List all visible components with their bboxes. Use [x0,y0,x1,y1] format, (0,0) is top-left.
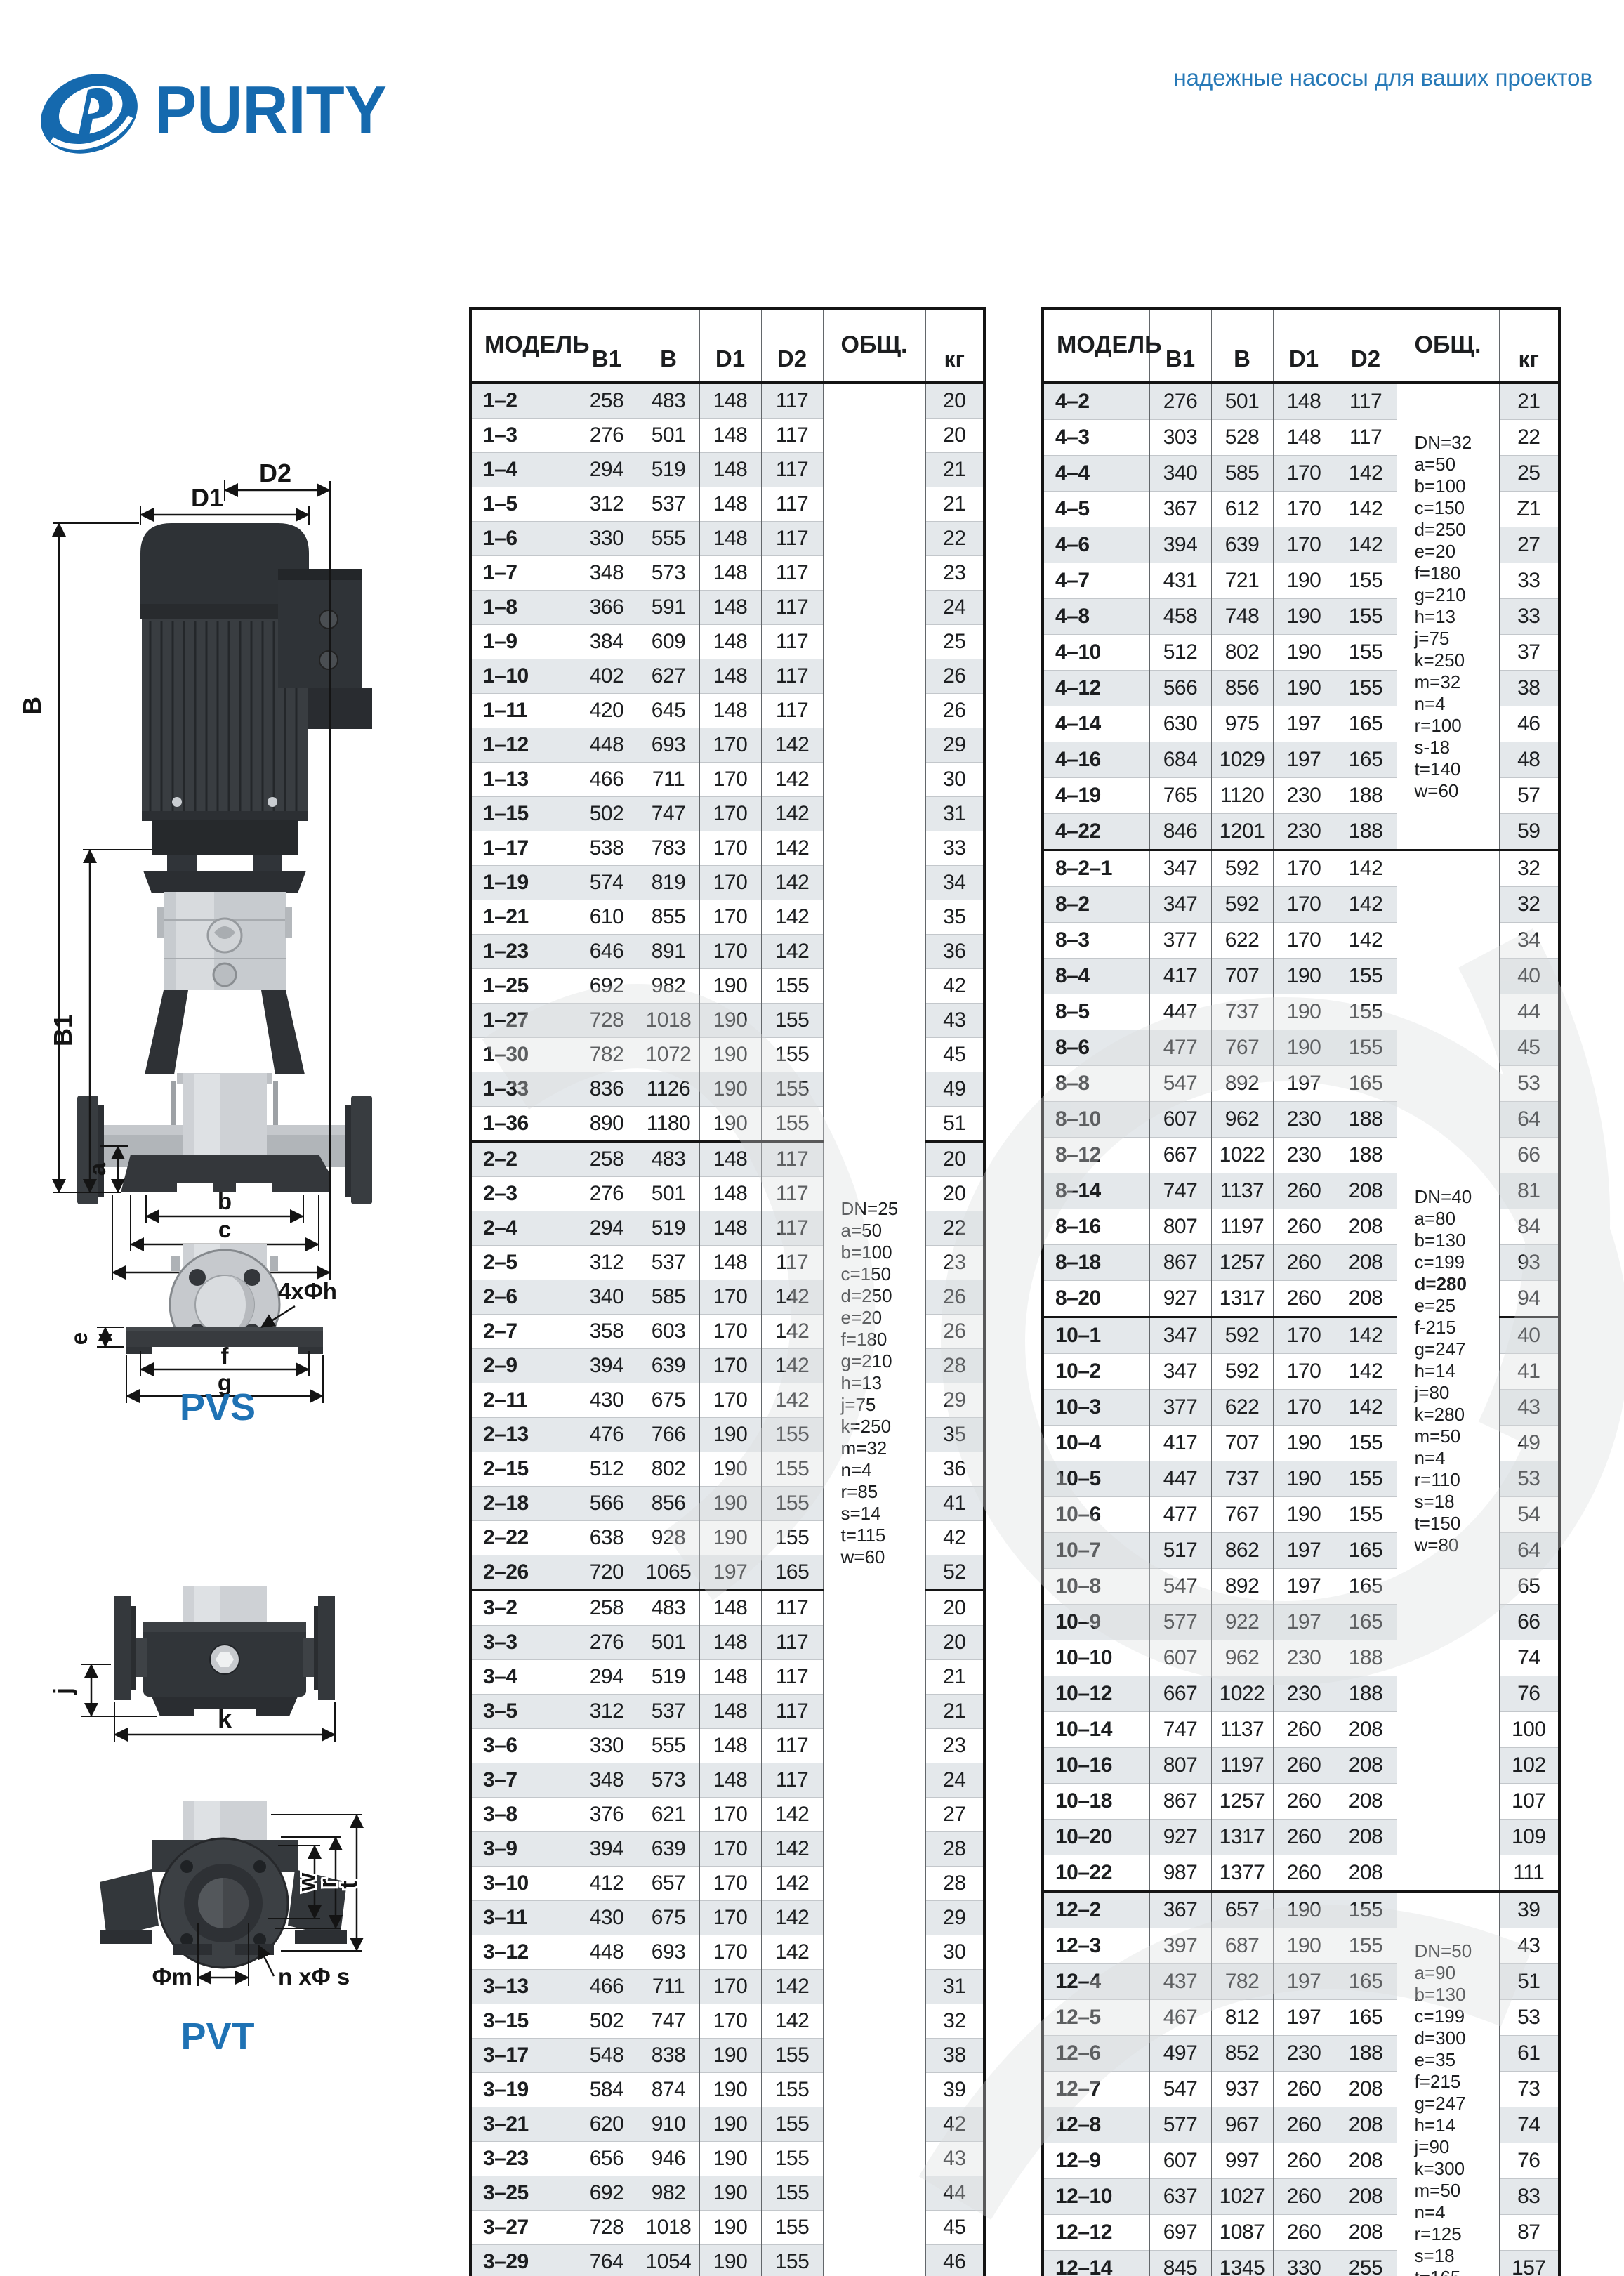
value-cell: 347 [1149,887,1211,923]
value-cell: 431 [1149,563,1211,599]
value-cell: 630 [1149,706,1211,742]
common-dimension-line: h=14 [1415,2114,1498,2136]
pvs-front-view: D2 D1 B B1 a b c [18,459,372,1280]
common-dimension-line: h=13 [841,1372,925,1394]
value-cell: 170 [699,1832,761,1867]
weight-cell: 21 [925,1660,984,1695]
model-cell: 1–30 [470,1038,576,1072]
value-cell: 142 [761,1383,823,1418]
value-cell: 982 [638,969,699,1004]
common-dimension-line: a=80 [1415,1208,1498,1230]
value-cell: 190 [699,1107,761,1142]
value-cell: 767 [1211,1497,1273,1533]
value-cell: 765 [1149,778,1211,814]
model-cell: 1–2 [470,383,576,419]
common-dimension-line: DN=25 [841,1198,925,1220]
value-cell: 170 [1273,527,1335,563]
model-cell: 8–4 [1043,959,1149,994]
value-cell: 148 [1273,383,1335,420]
value-cell: 155 [761,1038,823,1072]
value-cell: 592 [1211,850,1273,887]
value-cell: 501 [638,1626,699,1660]
value-cell: 867 [1149,1784,1211,1820]
model-cell: 10–2 [1043,1354,1149,1390]
model-cell: 1–17 [470,831,576,866]
model-cell: 10–6 [1043,1497,1149,1533]
value-cell: 142 [1335,1390,1397,1426]
value-cell: 1120 [1211,778,1273,814]
value-cell: 208 [1335,2179,1397,2215]
weight-cell: 53 [1499,1461,1559,1497]
model-cell: 8–3 [1043,923,1149,959]
value-cell: 190 [699,2073,761,2107]
value-cell: 377 [1149,923,1211,959]
value-cell: 1018 [638,1004,699,1038]
model-cell: 8–14 [1043,1173,1149,1209]
common-dimension-line: f=180 [1415,563,1498,584]
model-cell: 3–6 [470,1729,576,1763]
weight-cell: 84 [1499,1209,1559,1245]
value-cell: 528 [1211,420,1273,456]
model-cell: 10–16 [1043,1748,1149,1784]
model-cell: 4–5 [1043,492,1149,527]
value-cell: 197 [1273,742,1335,778]
value-cell: 693 [638,728,699,763]
value-cell: 260 [1273,2143,1335,2179]
value-cell: 117 [761,625,823,659]
value-cell: 519 [638,1660,699,1695]
weight-cell: 32 [1499,850,1559,887]
value-cell: 874 [638,2073,699,2107]
model-cell: 4–10 [1043,635,1149,671]
model-cell: 10–5 [1043,1461,1149,1497]
common-dimension-line: g=247 [1415,1338,1498,1360]
weight-cell: 33 [1499,563,1559,599]
model-cell: 3–9 [470,1832,576,1867]
value-cell: 142 [761,1867,823,1901]
value-cell: 483 [638,1591,699,1626]
value-cell: 142 [1335,887,1397,923]
common-dimension-line: r=110 [1415,1469,1498,1491]
weight-cell: 29 [925,728,984,763]
value-cell: 928 [638,1521,699,1555]
value-cell: 117 [761,556,823,591]
weight-cell: 26 [925,659,984,694]
value-cell: 276 [1149,383,1211,420]
value-cell: 1201 [1211,814,1273,850]
value-cell: 155 [1335,635,1397,671]
value-cell: 260 [1273,1855,1335,1892]
value-cell: 170 [1273,850,1335,887]
common-dimension-line: f-215 [1415,1317,1498,1338]
common-dimension-line: e=25 [1415,1295,1498,1317]
value-cell: 747 [638,2004,699,2039]
value-cell: 155 [1335,671,1397,706]
weight-cell: 74 [1499,1640,1559,1676]
model-cell: 3–15 [470,2004,576,2039]
bolt-count-callout: n xΦ s [278,1963,350,1989]
common-dimension-line: c=150 [841,1263,925,1285]
weight-cell: 32 [925,2004,984,2039]
value-cell: 537 [638,487,699,522]
value-cell: 607 [1149,1640,1211,1676]
value-cell: 574 [576,866,638,900]
model-cell: 2–15 [470,1452,576,1487]
common-dimension-line: s=18 [1415,2245,1498,2267]
model-cell: 2–4 [470,1211,576,1246]
value-cell: 862 [1211,1533,1273,1569]
value-cell: 547 [1149,1066,1211,1102]
weight-cell: 157 [1499,2251,1559,2276]
value-cell: 609 [638,625,699,659]
model-cell: 12–9 [1043,2143,1149,2179]
dim-label-e: e [66,1332,92,1345]
model-cell: 2–5 [470,1246,576,1280]
value-cell: 148 [699,1660,761,1695]
value-cell: 783 [638,831,699,866]
model-cell: 8–5 [1043,994,1149,1030]
value-cell: 208 [1335,2215,1397,2251]
value-cell: 675 [638,1901,699,1935]
value-cell: 170 [699,1349,761,1383]
value-cell: 190 [699,2039,761,2073]
value-cell: 188 [1335,1640,1397,1676]
value-cell: 867 [1149,1245,1211,1281]
value-cell: 782 [1211,1964,1273,2000]
value-cell: 260 [1273,1209,1335,1245]
value-cell: 190 [699,1418,761,1452]
value-cell: 170 [1273,1317,1335,1354]
model-cell: 8–6 [1043,1030,1149,1066]
weight-cell: 73 [1499,2072,1559,2107]
value-cell: 1126 [638,1072,699,1107]
value-cell: 537 [638,1246,699,1280]
weight-cell: 64 [1499,1102,1559,1138]
value-cell: 255 [1335,2251,1397,2276]
weight-cell: 35 [925,1418,984,1452]
value-cell: 117 [761,1211,823,1246]
value-cell: 417 [1149,1426,1211,1461]
value-cell: 148 [699,659,761,694]
weight-cell: 21 [1499,383,1559,420]
value-cell: 170 [699,1970,761,2004]
value-cell: 142 [761,831,823,866]
value-cell: 1317 [1211,1281,1273,1317]
weight-cell: 45 [925,2211,984,2245]
value-cell: 767 [1211,1030,1273,1066]
value-cell: 190 [699,2211,761,2245]
value-cell: 747 [1149,1173,1211,1209]
value-cell: 397 [1149,1928,1211,1964]
common-dimension-line: e=35 [1415,2049,1498,2071]
value-cell: 656 [576,2142,638,2176]
value-cell: 260 [1273,2072,1335,2107]
common-dimension-line: m=32 [841,1438,925,1459]
model-cell: 8–20 [1043,1281,1149,1317]
model-cell: 2–13 [470,1418,576,1452]
model-cell: 12–5 [1043,2000,1149,2036]
common-dimension-line: c=199 [1415,1251,1498,1273]
common-dimension-line: j=90 [1415,2136,1498,2158]
model-cell: 4–6 [1043,527,1149,563]
value-cell: 483 [638,1142,699,1177]
value-cell: 707 [1211,959,1273,994]
weight-cell: 33 [925,831,984,866]
value-cell: 657 [1211,1892,1273,1928]
weight-cell: 29 [925,1901,984,1935]
value-cell: 638 [576,1521,638,1555]
value-cell: 190 [699,1521,761,1555]
value-cell: 208 [1335,1173,1397,1209]
dim-label-b1: B1 [48,1014,77,1046]
value-cell: 1377 [1211,1855,1273,1892]
weight-cell: 31 [925,797,984,831]
table-row: 12–2367657190155DN=50a=90b=130c=199d=300… [1043,1892,1559,1928]
value-cell: 910 [638,2107,699,2142]
value-cell: 748 [1211,599,1273,635]
value-cell: 612 [1211,492,1273,527]
value-cell: 497 [1149,2036,1211,2072]
common-dimension-line: w=80 [1415,1534,1498,1556]
value-cell: 1317 [1211,1820,1273,1855]
value-cell: 170 [699,1383,761,1418]
dim-label-k: k [218,1704,232,1733]
value-cell: 547 [1149,1569,1211,1605]
model-cell: 10–3 [1043,1390,1149,1426]
col-header-obsh: ОБЩ. [823,308,925,383]
value-cell: 142 [761,728,823,763]
model-cell: 10–10 [1043,1640,1149,1676]
model-cell: 1–4 [470,453,576,487]
col-header-kg: кг [925,308,984,383]
value-cell: 802 [638,1452,699,1487]
value-cell: 155 [761,1004,823,1038]
model-cell: 3–2 [470,1591,576,1626]
value-cell: 502 [576,2004,638,2039]
common-dimension-line: m=50 [1415,1426,1498,1447]
weight-cell: 52 [925,1555,984,1591]
value-cell: 855 [638,900,699,935]
value-cell: 155 [1335,1928,1397,1964]
value-cell: 621 [638,1798,699,1832]
dim-label-b-height: B [18,697,46,715]
value-cell: 384 [576,625,638,659]
value-cell: 892 [1211,1066,1273,1102]
model-cell: 12–6 [1043,2036,1149,2072]
value-cell: 155 [1335,599,1397,635]
value-cell: 566 [576,1487,638,1521]
value-cell: 312 [576,487,638,522]
weight-cell: 87 [1499,2215,1559,2251]
model-cell: 1–12 [470,728,576,763]
value-cell: 394 [576,1349,638,1383]
value-cell: 303 [1149,420,1211,456]
value-cell: 165 [1335,1605,1397,1640]
value-cell: 155 [761,2245,823,2276]
weight-cell: 44 [925,2176,984,2211]
model-cell: 8–12 [1043,1138,1149,1173]
col-header-model: МОДЕЛЬ [1043,308,1149,383]
model-cell: 4–16 [1043,742,1149,778]
value-cell: 802 [1211,635,1273,671]
common-dimension-line: n=4 [1415,1447,1498,1469]
value-cell: 117 [761,1695,823,1729]
value-cell: 190 [1273,1497,1335,1533]
value-cell: 190 [1273,1030,1335,1066]
value-cell: 766 [638,1418,699,1452]
value-cell: 584 [576,2073,638,2107]
col-header-model: МОДЕЛЬ [470,308,576,383]
value-cell: 1345 [1211,2251,1273,2276]
common-dimension-line: w=60 [841,1546,925,1568]
value-cell: 208 [1335,2072,1397,2107]
dim-label-fm2: Фm [152,1963,192,1989]
value-cell: 592 [1211,887,1273,923]
model-cell: 1–23 [470,935,576,969]
value-cell: 188 [1335,1138,1397,1173]
value-cell: 148 [699,1695,761,1729]
model-cell: 4–2 [1043,383,1149,420]
model-cell: 3–29 [470,2245,576,2276]
value-cell: 230 [1273,1102,1335,1138]
value-cell: 170 [699,1280,761,1315]
value-cell: 117 [761,1660,823,1695]
value-cell: 170 [699,935,761,969]
value-cell: 148 [699,522,761,556]
value-cell: 117 [761,1246,823,1280]
model-cell: 4–4 [1043,456,1149,492]
weight-cell: 43 [925,1004,984,1038]
value-cell: 190 [1273,1928,1335,1964]
model-cell: 10–20 [1043,1820,1149,1855]
value-cell: 577 [1149,2107,1211,2143]
value-cell: 258 [576,1142,638,1177]
value-cell: 155 [761,1521,823,1555]
value-cell: 208 [1335,1245,1397,1281]
weight-cell: 53 [1499,2000,1559,2036]
value-cell: 155 [761,2107,823,2142]
value-cell: 142 [761,1901,823,1935]
value-cell: 684 [1149,742,1211,778]
common-dimension-line: DN=40 [1415,1186,1498,1208]
value-cell: 591 [638,591,699,625]
value-cell: 208 [1335,1712,1397,1748]
value-cell: 639 [638,1349,699,1383]
value-cell: 165 [1335,1964,1397,2000]
common-dimension-line: t=150 [1415,1513,1498,1534]
value-cell: 402 [576,659,638,694]
model-cell: 12–4 [1043,1964,1149,2000]
value-cell: 197 [1273,1964,1335,2000]
junction-box [278,569,362,688]
value-cell: 555 [638,1729,699,1763]
value-cell: 165 [1335,1066,1397,1102]
value-cell: 117 [761,453,823,487]
value-cell: 142 [761,1315,823,1349]
table-row: 1–2258483148117DN=25a=50b=100c=150d=250e… [470,383,984,419]
value-cell: 190 [1273,1892,1335,1928]
common-dimension-line: k=250 [841,1416,925,1438]
value-cell: 260 [1273,1281,1335,1317]
value-cell: 603 [638,1315,699,1349]
value-cell: 347 [1149,850,1211,887]
weight-cell: 39 [1499,1892,1559,1928]
value-cell: 412 [576,1867,638,1901]
common-dimension-line: c=150 [1415,497,1498,519]
model-cell: 1–21 [470,900,576,935]
common-dimension-line: g=210 [841,1350,925,1372]
value-cell: 142 [761,935,823,969]
common-dimension-line: m=32 [1415,671,1498,693]
dim-label-b-width: b [218,1188,232,1214]
model-cell: 3–5 [470,1695,576,1729]
value-cell: 142 [1335,456,1397,492]
value-cell: 1137 [1211,1173,1273,1209]
col-header-b: B [1211,308,1273,383]
pvt-bottom-view: w r t Фm n xΦ s PVT [100,1801,362,2058]
value-cell: 622 [1211,923,1273,959]
value-cell: 170 [699,1867,761,1901]
value-cell: 728 [576,2211,638,2245]
model-cell: 12–10 [1043,2179,1149,2215]
weight-cell: 30 [925,1935,984,1970]
weight-cell: 46 [925,2245,984,2276]
value-cell: 937 [1211,2072,1273,2107]
value-cell: 1257 [1211,1245,1273,1281]
model-cell: 2–7 [470,1315,576,1349]
value-cell: 645 [638,694,699,728]
value-cell: 230 [1273,778,1335,814]
value-cell: 148 [1273,420,1335,456]
value-cell: 430 [576,1383,638,1418]
value-cell: 501 [638,419,699,453]
value-cell: 610 [576,900,638,935]
value-cell: 155 [1335,1426,1397,1461]
value-cell: 117 [761,1626,823,1660]
value-cell: 367 [1149,1892,1211,1928]
value-cell: 230 [1273,814,1335,850]
value-cell: 190 [1273,563,1335,599]
model-cell: 12–12 [1043,2215,1149,2251]
table-row: 4–2276501148117DN=32a=50b=100c=150d=250e… [1043,383,1559,420]
model-cell: 1–13 [470,763,576,797]
model-cell: 2–2 [470,1142,576,1177]
model-cell: 3–19 [470,2073,576,2107]
weight-cell: 42 [925,2107,984,2142]
value-cell: 170 [699,866,761,900]
model-cell: 1–27 [470,1004,576,1038]
value-cell: 819 [638,866,699,900]
model-cell: 1–3 [470,419,576,453]
weight-cell: 26 [925,694,984,728]
value-cell: 148 [699,1246,761,1280]
pvt-series-label: PVT [180,2015,254,2058]
weight-cell: 28 [925,1832,984,1867]
weight-cell: 43 [1499,1390,1559,1426]
model-cell: 3–8 [470,1798,576,1832]
common-dimension-line: n=4 [1415,693,1498,715]
weight-cell: 28 [925,1349,984,1383]
value-cell: 190 [1273,1461,1335,1497]
value-cell: 260 [1273,1820,1335,1855]
model-cell: 1–15 [470,797,576,831]
value-cell: 197 [1273,706,1335,742]
weight-cell: 46 [1499,706,1559,742]
value-cell: 197 [699,1555,761,1591]
bolt-hole-callout: 4xΦh [278,1278,337,1304]
purity-logo-icon [37,59,142,164]
value-cell: 208 [1335,1820,1397,1855]
